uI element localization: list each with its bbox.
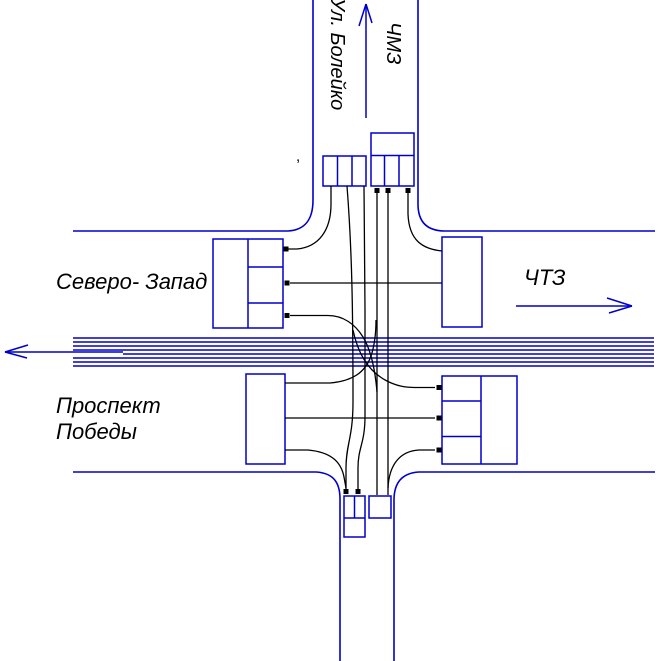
arrowhead-west bbox=[284, 247, 289, 252]
arrowhead-west bbox=[285, 281, 290, 286]
eastbound-approach-box bbox=[246, 374, 285, 464]
road-edge-north-right bbox=[418, 0, 655, 231]
road-edge-south-left bbox=[73, 472, 340, 661]
flow-arrowheads bbox=[284, 188, 442, 494]
east-arrow bbox=[516, 298, 632, 313]
northbound-approach-box bbox=[369, 496, 391, 518]
median-tram-lines bbox=[73, 338, 654, 366]
street-label-boleyko: Ул. Болейко bbox=[324, 0, 348, 110]
road-edge-north-left bbox=[73, 0, 313, 231]
area-label-severo-zapad: Северо- Запад bbox=[56, 269, 207, 295]
westbound-exit-box bbox=[213, 239, 283, 328]
west-arrow bbox=[5, 345, 123, 358]
area-label-chtz: ЧТЗ bbox=[524, 265, 566, 291]
northbound-exit-box bbox=[371, 133, 414, 186]
arrowhead-south bbox=[356, 489, 361, 494]
arrowhead-east bbox=[437, 448, 442, 453]
arrowhead-east bbox=[437, 385, 442, 390]
southbound-approach-box bbox=[323, 156, 366, 186]
flow-westbound-right-turn bbox=[408, 193, 442, 251]
southbound-exit-box bbox=[344, 496, 365, 537]
street-label-line1: Проспект bbox=[56, 393, 161, 419]
arrowhead-east bbox=[437, 416, 442, 421]
street-label-prospekt-pobedy: Проспект Победы bbox=[56, 393, 161, 445]
area-label-chmz: ЧМЗ bbox=[380, 22, 404, 64]
arrowhead-north bbox=[406, 188, 411, 193]
intersection-diagram: Ул. Болейко ЧМЗ Северо- Запад ЧТЗ Проспе… bbox=[0, 0, 661, 661]
arrowhead-north bbox=[375, 188, 380, 193]
arrowhead-south bbox=[344, 489, 349, 494]
arrowhead-north bbox=[386, 188, 391, 193]
flow-trajectories bbox=[285, 186, 442, 495]
stray-mark: , bbox=[296, 148, 300, 166]
road-edge-south-right bbox=[394, 472, 655, 661]
eastbound-exit-box bbox=[442, 376, 517, 464]
north-arrow bbox=[359, 4, 372, 118]
arrowhead-west bbox=[285, 313, 290, 318]
street-label-line2: Победы bbox=[56, 419, 161, 445]
westbound-approach-box bbox=[442, 237, 482, 327]
road-edges bbox=[73, 0, 655, 661]
flow-northbound-right-turn bbox=[388, 450, 435, 488]
flow-eastbound-left-turn bbox=[285, 320, 376, 383]
